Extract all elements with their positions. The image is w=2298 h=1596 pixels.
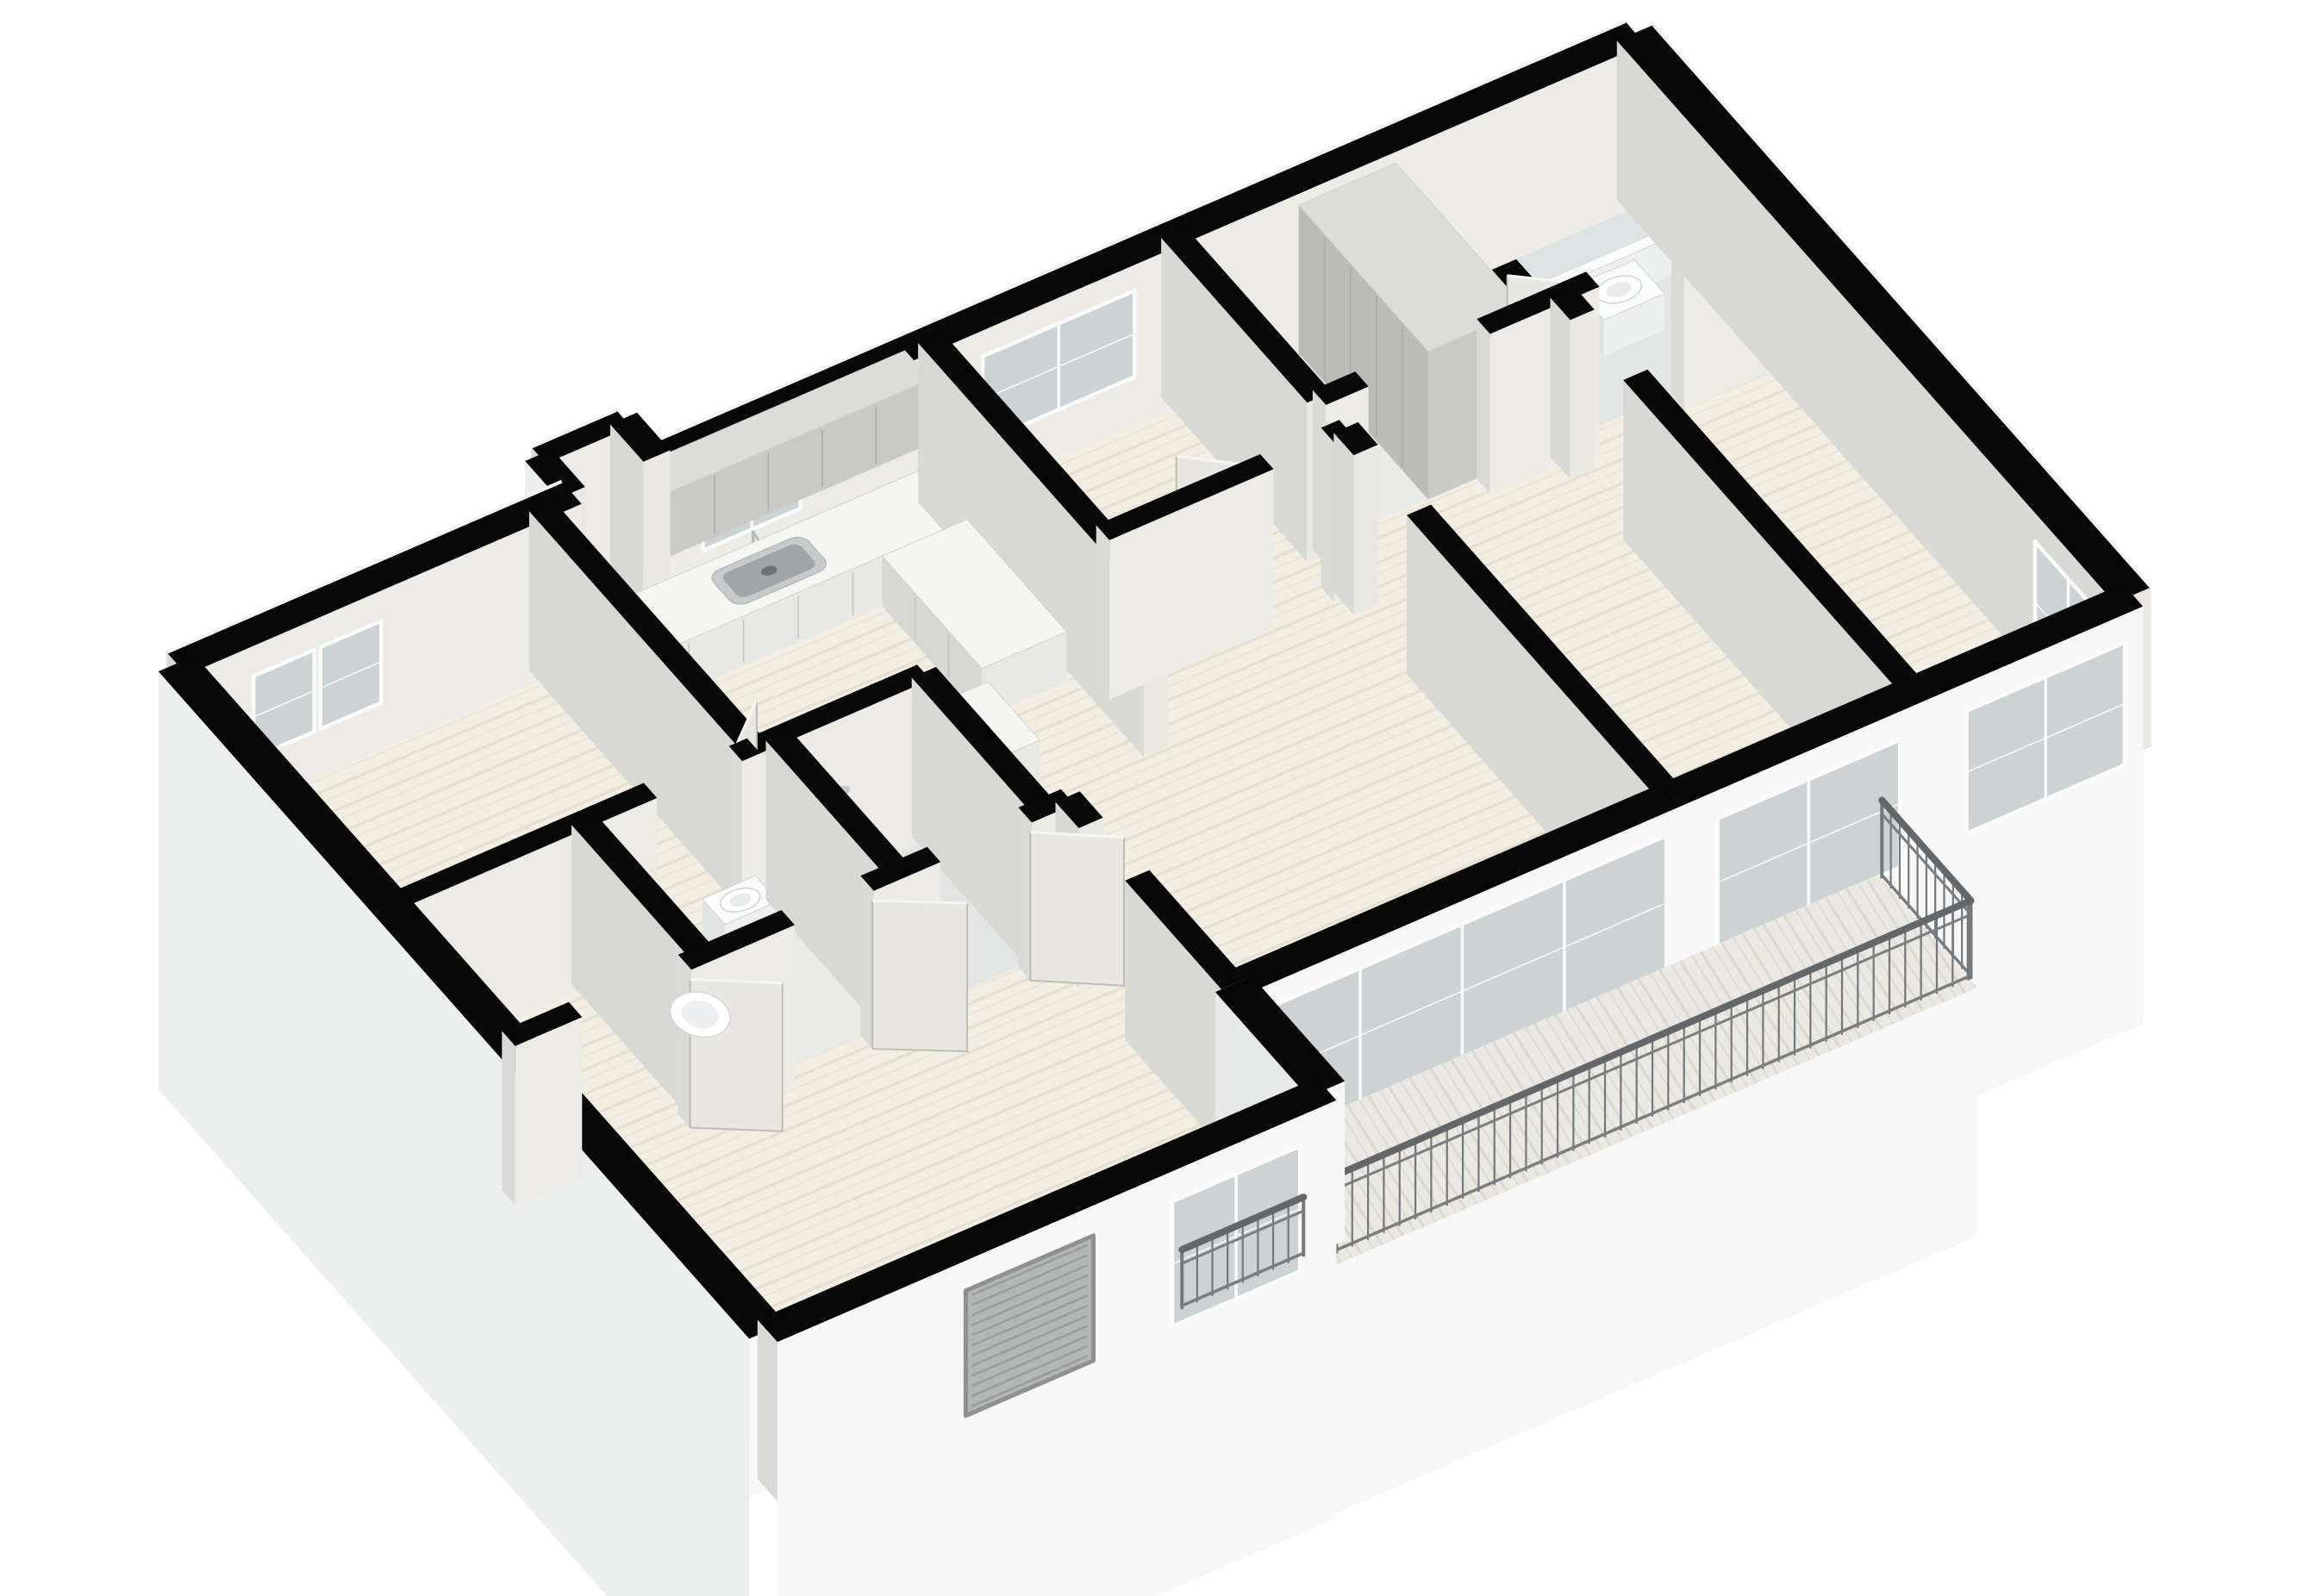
- toilet-door-leaf: [872, 901, 967, 1051]
- page: [0, 0, 2298, 1596]
- living-bedroomC-wall-a: [1333, 422, 1377, 614]
- living-bedroomC-wall-a-end: [1353, 445, 1377, 614]
- toilet-door: [872, 901, 967, 1051]
- corridor-south-wall-a-face: [515, 1017, 583, 1206]
- floor-plan-figure: [0, 0, 2298, 1596]
- bedroomC-bedroomD-wall-a-end: [1571, 309, 1595, 479]
- bedroomC-bedroomD-wall-a: [1551, 287, 1595, 479]
- corridor-south-wall-a: [502, 1002, 582, 1206]
- shower-room-door: [1030, 832, 1124, 986]
- shower-room-door-leaf: [1030, 832, 1124, 986]
- roomB-south-wall-a-end: [1096, 525, 1109, 699]
- exterior-wall-entrance-end: [758, 1319, 777, 1501]
- floor-plan-3d-render: [0, 0, 2298, 1596]
- bedroomC-bedroomD-wall-a-face: [1551, 297, 1571, 479]
- corridor-south-wall-a-end: [502, 1031, 515, 1205]
- living-bedroomC-wall-a-face: [1333, 433, 1353, 614]
- roomB-south-wall-b-end: [1321, 427, 1334, 602]
- closet-corridor-wall-b-end: [1477, 319, 1489, 493]
